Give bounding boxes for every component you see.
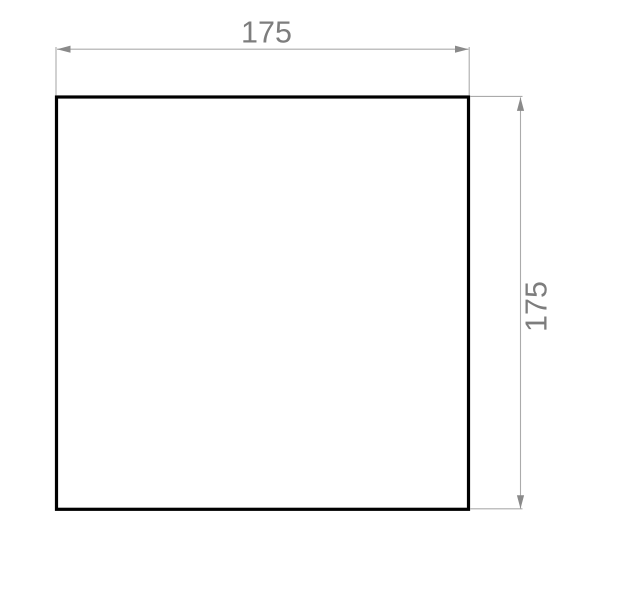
svg-text:175: 175 bbox=[520, 281, 554, 332]
svg-text:175: 175 bbox=[241, 16, 292, 50]
